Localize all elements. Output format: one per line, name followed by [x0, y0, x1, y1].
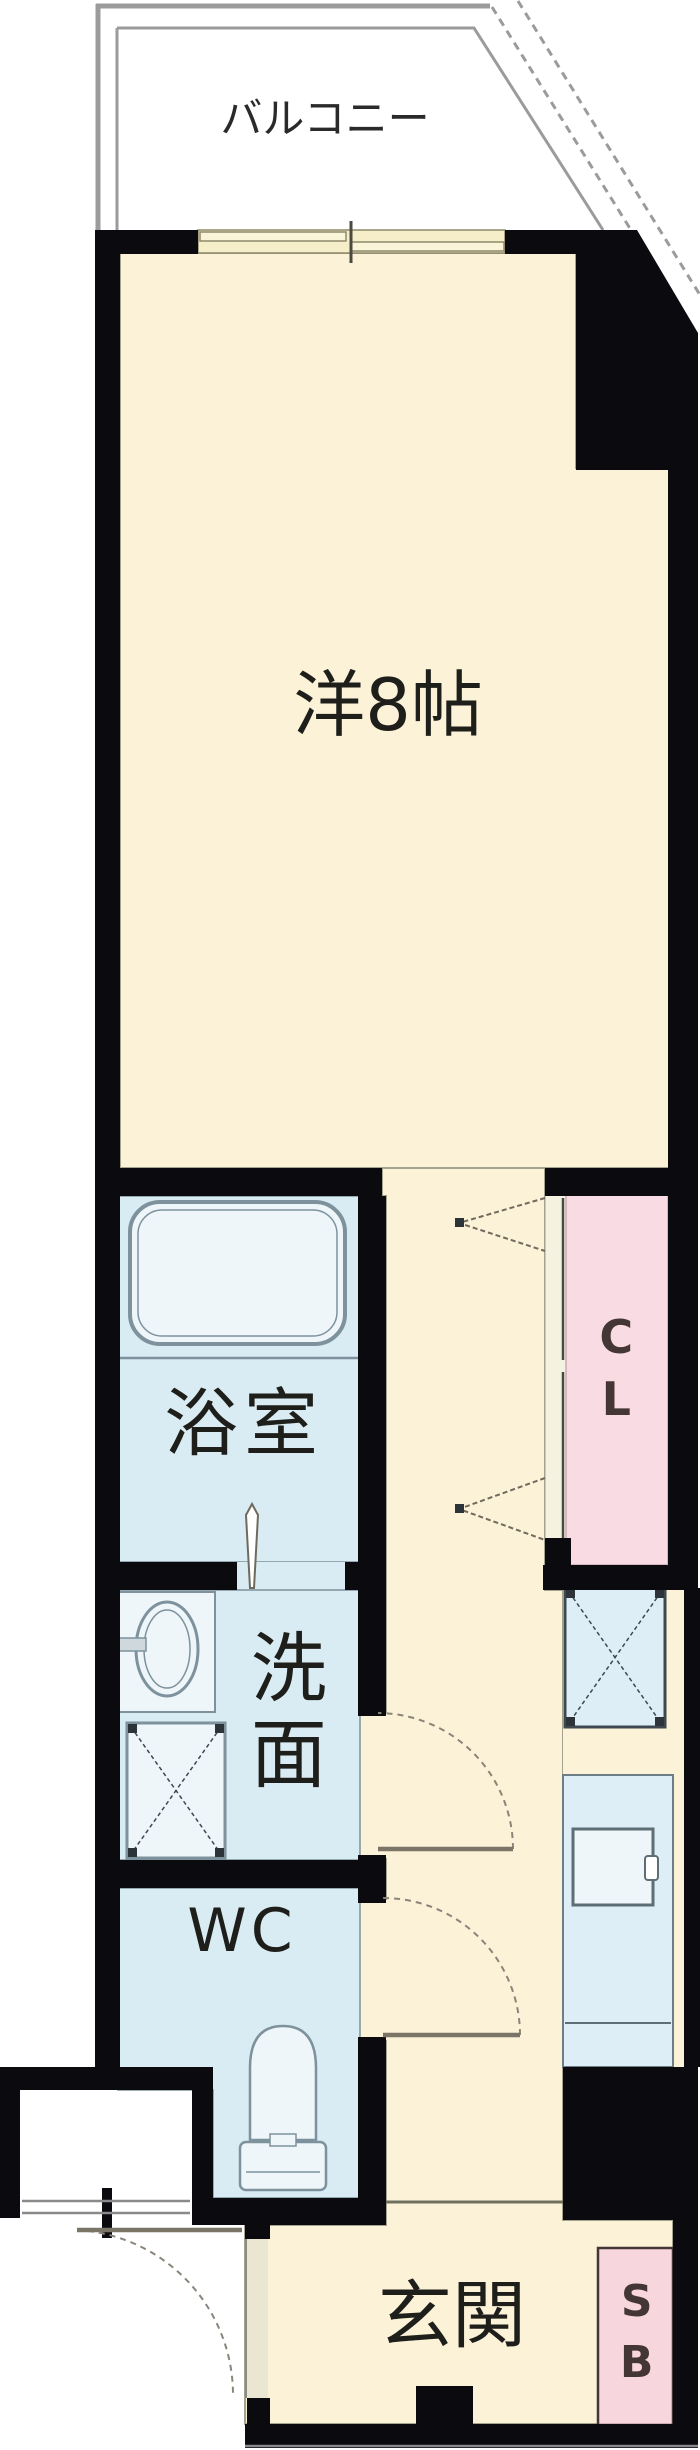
closet-door-apex: [455, 1218, 464, 1227]
wall-pillar: [247, 2398, 270, 2428]
corner-mark: [566, 1589, 575, 1598]
washroom-label: 洗面: [242, 1628, 322, 1800]
wall-right: [668, 462, 698, 1588]
wall-stub: [545, 1538, 571, 1565]
corner-mark: [655, 1717, 664, 1726]
corner-mark: [128, 1724, 137, 1733]
wall: [358, 1196, 386, 1716]
wall-right-thin: [684, 1588, 700, 2067]
wall-top-right-block: [576, 230, 698, 470]
wc-label: WC: [158, 1900, 326, 1963]
balcony-label: バルコニー: [180, 97, 470, 141]
corner-mark: [566, 1717, 575, 1726]
wall: [345, 1562, 386, 1590]
closet-door-apex: [455, 1504, 464, 1513]
washroom-doorway-gap: [356, 1713, 388, 1858]
wall-left: [95, 230, 120, 2070]
knob-icon: [645, 1856, 658, 1880]
washing-machine-box-icon: [127, 1723, 225, 1858]
corner-mark: [128, 1848, 137, 1857]
wall-right-bottom: [673, 2220, 698, 2448]
bathtub-icon: [120, 1202, 358, 1358]
closet-door-track: [545, 1193, 568, 1565]
wc-doorway-gap: [356, 1900, 388, 2040]
corner-mark: [655, 1589, 664, 1598]
toilet-bowl: [250, 2026, 316, 2140]
sink-icon: [104, 1592, 215, 1712]
shoe-box-label: SB: [613, 2276, 659, 2398]
toilet-seat-hinge: [270, 2134, 296, 2146]
wall: [95, 1562, 237, 1590]
closet-label: CL: [592, 1310, 640, 1434]
entrance-label: 玄関: [350, 2278, 554, 2356]
floor-plan: バルコニー 洋8帖 浴室 洗面 WC CL 玄関 SB: [0, 0, 700, 2450]
corner-mark: [215, 1848, 224, 1857]
entrance-door-swing-arc: [77, 2230, 233, 2395]
wall-porch-left: [0, 2090, 20, 2218]
corner-mark: [215, 1724, 224, 1733]
wall: [505, 230, 576, 254]
bathroom-label: 浴室: [138, 1386, 350, 1464]
wall-pillar: [245, 2223, 270, 2239]
counter-panel-icon: [563, 1775, 673, 2067]
wall-bottom: [245, 2424, 698, 2448]
wall: [95, 1860, 360, 1888]
window-right-pane: [351, 242, 504, 251]
bathtub-outer: [130, 1202, 345, 1344]
wall: [545, 1168, 698, 1196]
pipe-space-box-icon: [565, 1588, 665, 1727]
toilet-icon: [240, 2026, 326, 2190]
entrance-step-block: [416, 2386, 473, 2424]
wall: [192, 2198, 386, 2225]
floor-plan-drawing: [0, 0, 700, 2450]
stove-square: [573, 1829, 653, 1905]
wall-block: [563, 2067, 698, 2220]
wall-porch-right: [192, 2090, 213, 2198]
toilet-tank: [240, 2142, 326, 2190]
wall: [543, 1565, 698, 1590]
window-left-pane: [200, 232, 346, 241]
wall-door-stub: [358, 1855, 386, 1903]
wall: [358, 2037, 386, 2223]
entrance-door-frame: [247, 2239, 268, 2398]
main-room-label: 洋8帖: [260, 668, 516, 744]
wall: [95, 1168, 382, 1196]
wall-porch-top: [0, 2067, 213, 2090]
